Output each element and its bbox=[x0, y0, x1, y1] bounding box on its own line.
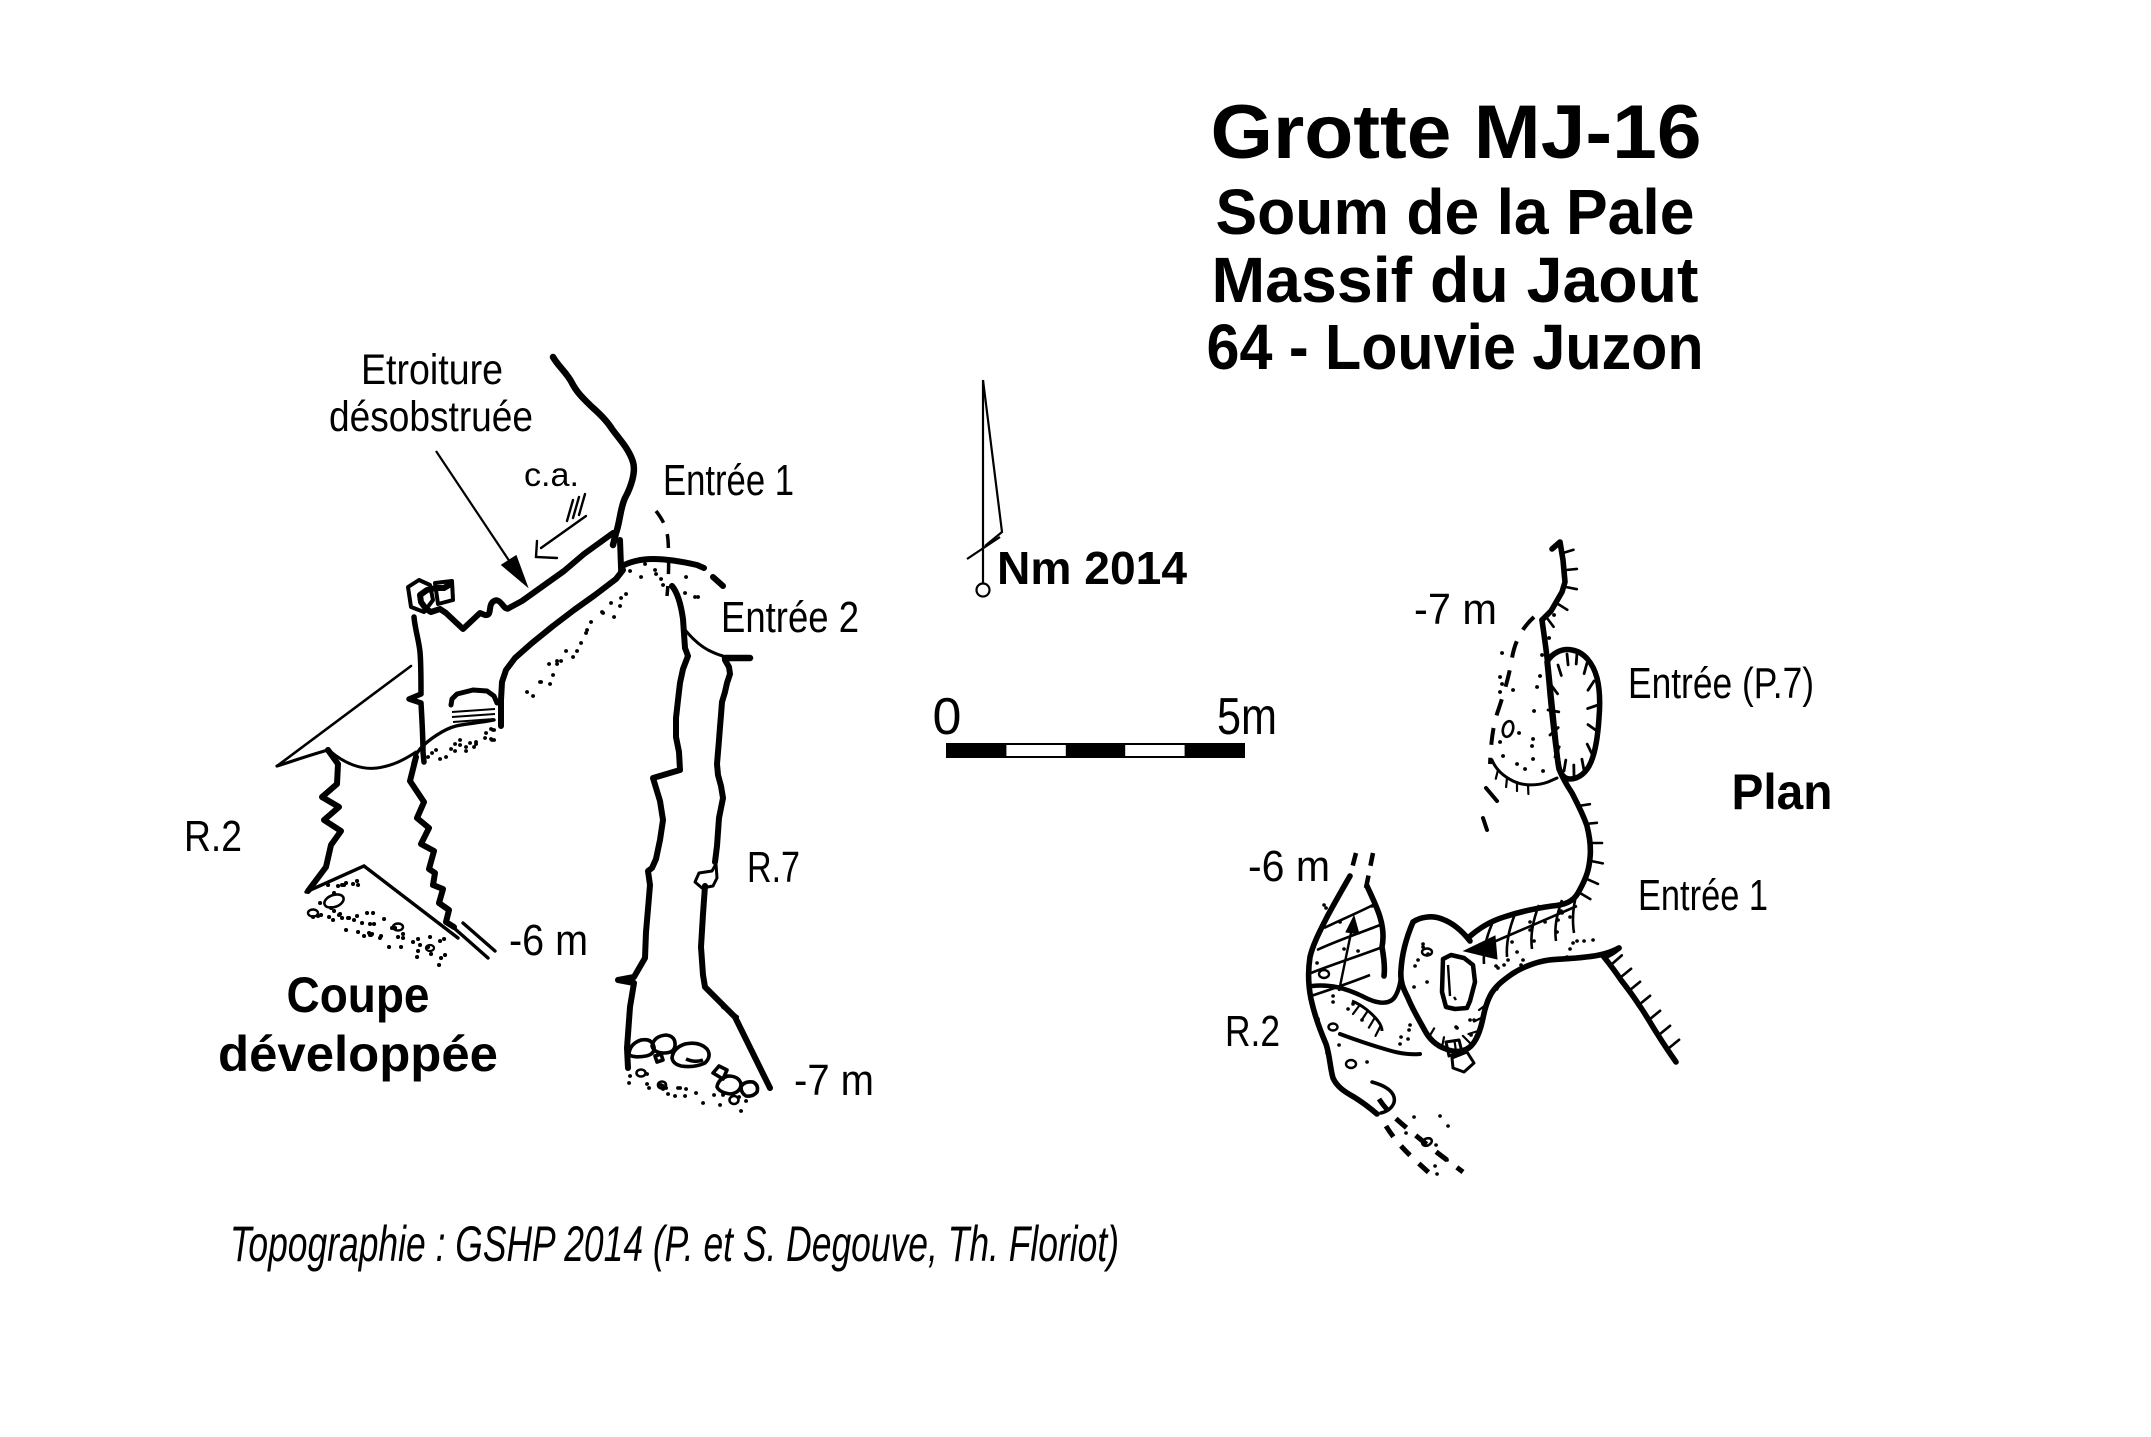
svg-text:-6 m: -6 m bbox=[1248, 842, 1330, 891]
svg-text:désobstruée: désobstruée bbox=[329, 393, 533, 441]
svg-text:Plan: Plan bbox=[1732, 764, 1833, 820]
svg-text:Entrée 2: Entrée 2 bbox=[721, 593, 859, 642]
svg-text:R.2: R.2 bbox=[1225, 1007, 1280, 1056]
svg-text:Entrée 1: Entrée 1 bbox=[663, 456, 794, 505]
svg-text:Topographie : GSHP 2014 (P. et: Topographie : GSHP 2014 (P. et S. Degouv… bbox=[230, 1216, 1119, 1272]
svg-text:c.a.: c.a. bbox=[524, 456, 579, 493]
svg-text:5m: 5m bbox=[1217, 688, 1277, 746]
svg-text:-7 m: -7 m bbox=[794, 1056, 874, 1105]
svg-text:0: 0 bbox=[933, 688, 962, 746]
svg-text:Grotte MJ-16: Grotte MJ-16 bbox=[1211, 90, 1702, 175]
svg-text:développée: développée bbox=[218, 1026, 498, 1082]
svg-text:Massif du Jaout: Massif du Jaout bbox=[1212, 244, 1699, 316]
svg-text:Etroiture: Etroiture bbox=[361, 346, 503, 394]
svg-text:Coupe: Coupe bbox=[287, 967, 430, 1023]
svg-text:64 - Louvie Juzon: 64 - Louvie Juzon bbox=[1207, 311, 1704, 383]
svg-text:Soum de la Pale: Soum de la Pale bbox=[1216, 176, 1695, 248]
svg-text:Entrée 1: Entrée 1 bbox=[1638, 871, 1768, 920]
svg-text:R.7: R.7 bbox=[747, 843, 800, 892]
svg-text:Entrée (P.7): Entrée (P.7) bbox=[1628, 659, 1814, 708]
svg-text:Nm 2014: Nm 2014 bbox=[997, 542, 1187, 594]
svg-text:R.2: R.2 bbox=[184, 812, 242, 861]
svg-text:-6 m: -6 m bbox=[509, 916, 588, 965]
svg-text:-7 m: -7 m bbox=[1414, 585, 1497, 634]
